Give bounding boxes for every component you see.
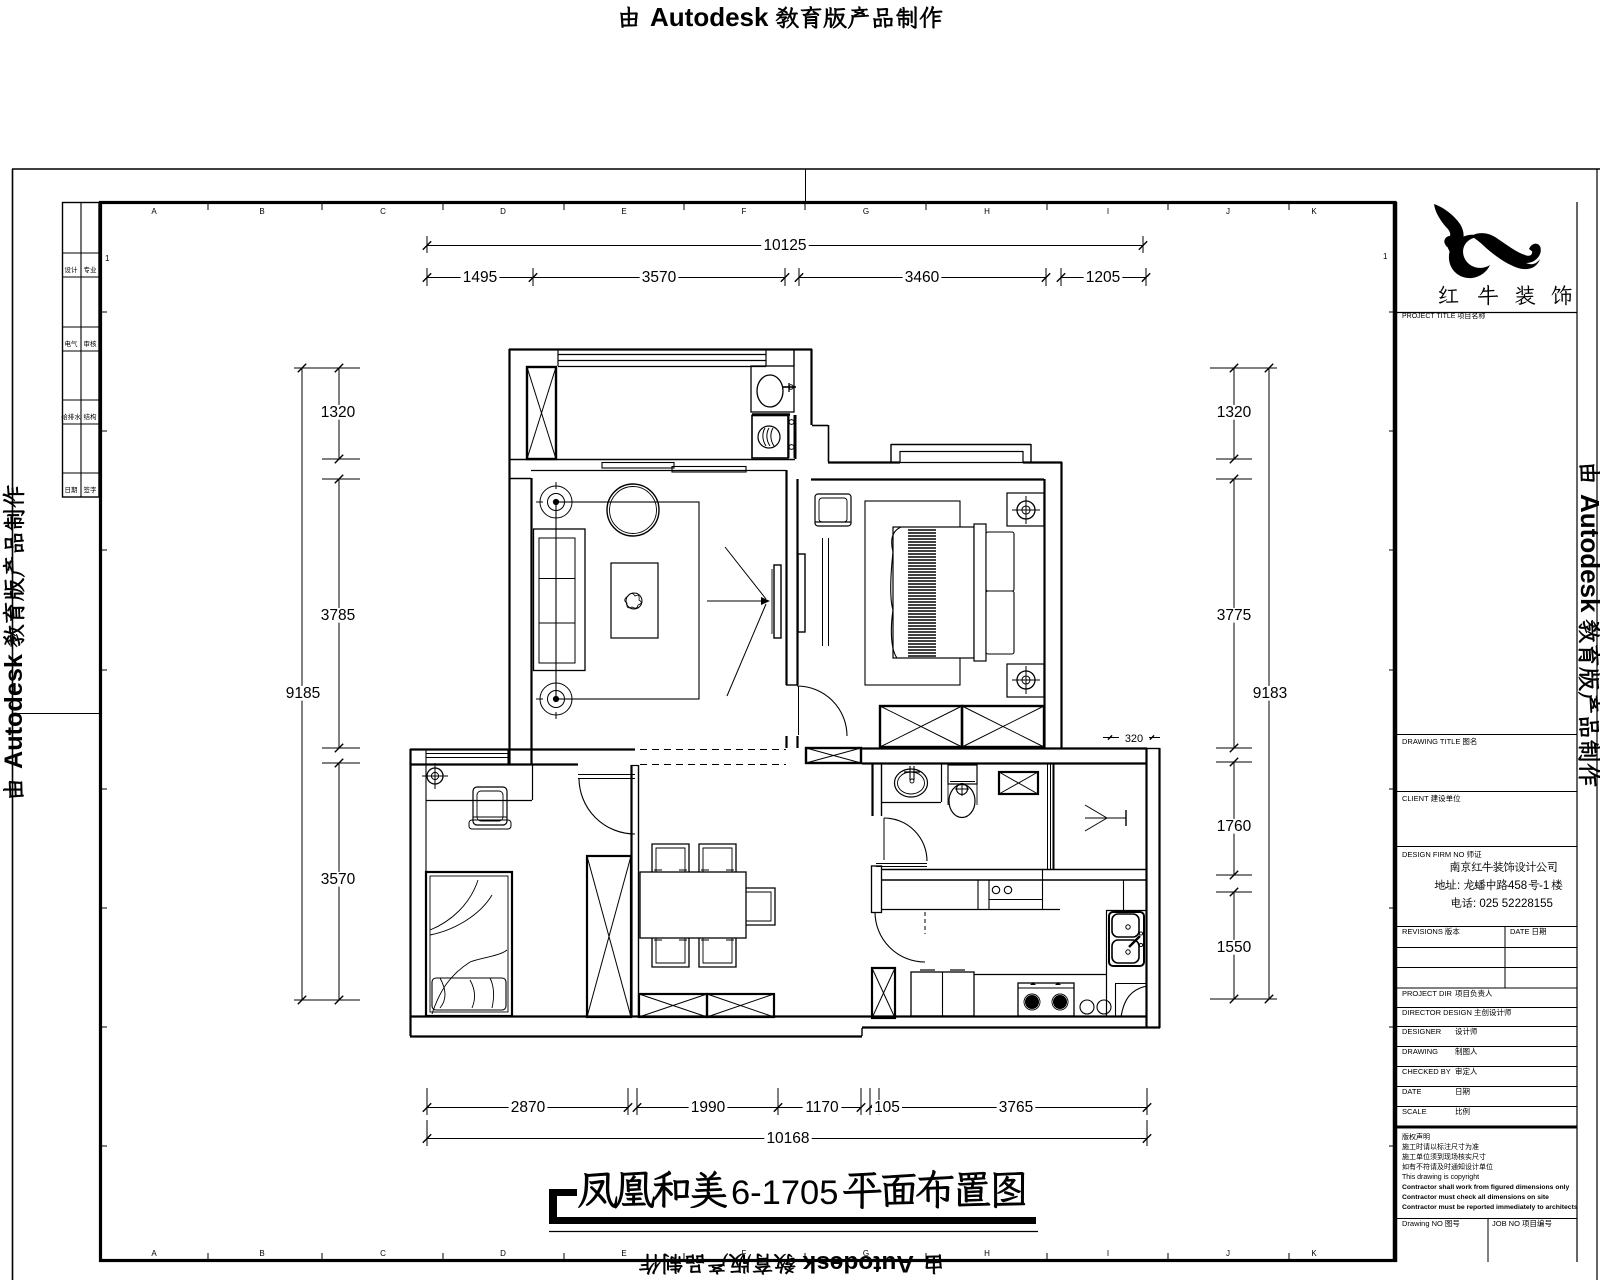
svg-text:3765: 3765 bbox=[999, 1099, 1033, 1116]
svg-text:3570: 3570 bbox=[642, 269, 677, 286]
svg-text:I: I bbox=[1107, 207, 1109, 216]
svg-text:1990: 1990 bbox=[691, 1099, 726, 1116]
svg-text:CLIENT 建设单位: CLIENT 建设单位 bbox=[1402, 793, 1461, 803]
svg-text:Contractor must be reported im: Contractor must be reported immediately … bbox=[1402, 1204, 1578, 1211]
svg-text:SCALE: SCALE bbox=[1402, 1107, 1427, 1116]
svg-text:D: D bbox=[500, 207, 506, 216]
svg-text:1205: 1205 bbox=[1086, 269, 1120, 286]
svg-text:3785: 3785 bbox=[321, 607, 355, 624]
svg-text:电气: 电气 bbox=[65, 339, 79, 348]
svg-text:DRAWING: DRAWING bbox=[1402, 1047, 1438, 1056]
svg-text:Autodesk: Autodesk bbox=[0, 653, 28, 769]
svg-text:PROJECT TITLE 项目名称: PROJECT TITLE 项目名称 bbox=[1402, 311, 1485, 320]
svg-text:REVISIONS 版本: REVISIONS 版本 bbox=[1402, 926, 1460, 936]
svg-text:1550: 1550 bbox=[1217, 939, 1252, 956]
svg-text:版权声明: 版权声明 bbox=[1402, 1132, 1430, 1141]
svg-text:B: B bbox=[259, 1249, 264, 1258]
svg-text:JOB NO 项目编号: JOB NO 项目编号 bbox=[1492, 1218, 1552, 1228]
svg-text:日期: 日期 bbox=[1455, 1087, 1470, 1096]
svg-text:比例: 比例 bbox=[1455, 1106, 1470, 1116]
svg-text:Contractor shall work from fig: Contractor shall work from figured dimen… bbox=[1402, 1184, 1570, 1191]
svg-text:J: J bbox=[1226, 1249, 1230, 1258]
svg-text:Drawing NO 图号: Drawing NO 图号 bbox=[1402, 1219, 1460, 1228]
svg-text:H: H bbox=[984, 1249, 990, 1258]
svg-text:制图人: 制图人 bbox=[1455, 1046, 1478, 1056]
svg-text:10125: 10125 bbox=[763, 237, 806, 254]
svg-text:J: J bbox=[1226, 207, 1230, 216]
svg-text:I: I bbox=[1107, 1249, 1109, 1258]
svg-text:给排水: 给排水 bbox=[61, 412, 81, 421]
svg-text:Autodesk: Autodesk bbox=[650, 2, 769, 32]
svg-text:10168: 10168 bbox=[766, 1130, 809, 1147]
svg-text:日期: 日期 bbox=[65, 486, 79, 494]
svg-text:H: H bbox=[984, 207, 990, 216]
svg-text:E: E bbox=[621, 207, 626, 216]
svg-text:Contractor must check all dime: Contractor must check all dimensions on … bbox=[1402, 1194, 1549, 1201]
svg-text:审核: 审核 bbox=[84, 339, 98, 348]
svg-text:1320: 1320 bbox=[1217, 404, 1252, 421]
svg-text:-1: -1 bbox=[1539, 880, 1549, 892]
svg-text:审定人: 审定人 bbox=[1455, 1066, 1478, 1076]
svg-text:设计师: 设计师 bbox=[1455, 1026, 1478, 1036]
svg-text:320: 320 bbox=[1125, 733, 1143, 745]
svg-text:E: E bbox=[621, 1249, 626, 1258]
svg-text:9185: 9185 bbox=[286, 685, 320, 702]
svg-text:结构: 结构 bbox=[84, 412, 98, 421]
svg-text:This drawing is copyright: This drawing is copyright bbox=[1402, 1174, 1479, 1181]
svg-text:: 025 52228155: : 025 52228155 bbox=[1473, 898, 1553, 910]
svg-text:9183: 9183 bbox=[1253, 685, 1287, 702]
svg-text:2870: 2870 bbox=[511, 1099, 546, 1116]
svg-text:D: D bbox=[500, 1249, 506, 1258]
svg-text:DESIGNER: DESIGNER bbox=[1402, 1027, 1442, 1036]
svg-text:1170: 1170 bbox=[805, 1099, 839, 1116]
svg-text:458: 458 bbox=[1508, 880, 1527, 892]
svg-text:105: 105 bbox=[874, 1099, 900, 1116]
svg-text:项目负责人: 项目负责人 bbox=[1455, 988, 1493, 998]
svg-text:A: A bbox=[151, 1249, 157, 1258]
svg-text:6-1705: 6-1705 bbox=[731, 1174, 838, 1212]
svg-text::: : bbox=[1457, 880, 1460, 892]
svg-text:B: B bbox=[259, 207, 264, 216]
svg-text:1495: 1495 bbox=[463, 269, 497, 286]
svg-text:1: 1 bbox=[1383, 252, 1388, 261]
svg-text:施工时请以标注尺寸为准: 施工时请以标注尺寸为准 bbox=[1402, 1142, 1479, 1151]
svg-text:DATE: DATE bbox=[1402, 1087, 1421, 1096]
svg-text:Autodesk: Autodesk bbox=[802, 1250, 914, 1277]
svg-text:C: C bbox=[380, 207, 386, 216]
svg-text:F: F bbox=[742, 207, 747, 216]
svg-text:C: C bbox=[380, 1249, 386, 1258]
svg-text:K: K bbox=[1311, 1249, 1317, 1258]
svg-text:施工单位须到现场核实尺寸: 施工单位须到现场核实尺寸 bbox=[1402, 1152, 1486, 1161]
svg-text:DRAWING TITLE 图名: DRAWING TITLE 图名 bbox=[1402, 736, 1477, 746]
svg-text:K: K bbox=[1311, 207, 1317, 216]
svg-text:专业: 专业 bbox=[84, 265, 98, 274]
svg-text:CHECKED BY: CHECKED BY bbox=[1402, 1067, 1451, 1076]
svg-text:1760: 1760 bbox=[1217, 818, 1252, 835]
svg-text:DATE 日期: DATE 日期 bbox=[1510, 927, 1547, 936]
svg-text:Autodesk: Autodesk bbox=[1575, 494, 1600, 613]
svg-text:DIRECTOR DESIGN 主创设计师: DIRECTOR DESIGN 主创设计师 bbox=[1402, 1007, 1512, 1017]
svg-text:3570: 3570 bbox=[321, 871, 356, 888]
svg-text:PROJECT DIR: PROJECT DIR bbox=[1402, 989, 1452, 998]
svg-text:1: 1 bbox=[105, 254, 110, 263]
svg-text:G: G bbox=[863, 207, 869, 216]
svg-text:3460: 3460 bbox=[905, 269, 940, 286]
svg-text:签字: 签字 bbox=[84, 485, 98, 494]
svg-text:DESIGN FIRM NO 师证: DESIGN FIRM NO 师证 bbox=[1402, 849, 1482, 859]
svg-text:A: A bbox=[151, 207, 157, 216]
svg-text:3775: 3775 bbox=[1217, 607, 1251, 624]
svg-text:设计: 设计 bbox=[65, 265, 79, 274]
svg-text:1320: 1320 bbox=[321, 404, 356, 421]
svg-text:如有不符请及时通知设计单位: 如有不符请及时通知设计单位 bbox=[1402, 1162, 1493, 1171]
